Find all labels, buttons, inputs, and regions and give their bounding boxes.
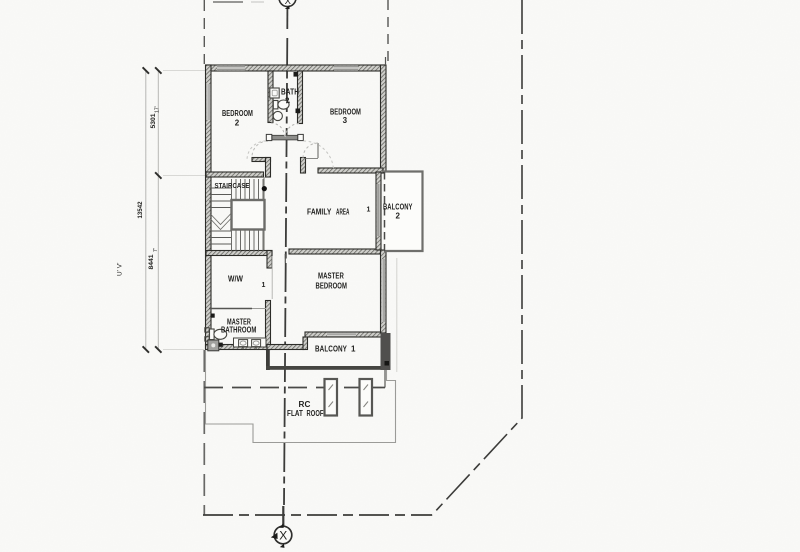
svg-text:FLAT: FLAT	[287, 408, 303, 418]
svg-text:1: 1	[351, 344, 356, 353]
svg-text:X: X	[279, 529, 287, 543]
svg-text:Uʼ Vʼ: Uʼ Vʼ	[116, 263, 124, 277]
svg-text:BEDROOM: BEDROOM	[222, 109, 253, 118]
svg-text:STAIRCASE: STAIRCASE	[215, 181, 250, 190]
svg-text:1: 1	[367, 207, 371, 214]
svg-text:BALCONY: BALCONY	[315, 344, 347, 353]
svg-text:3: 3	[343, 116, 348, 125]
svg-text:7ʼ: 7ʼ	[153, 248, 159, 252]
svg-text:BATH: BATH	[281, 88, 299, 97]
svg-text:BALCONY: BALCONY	[383, 202, 413, 211]
svg-text:FAMILY: FAMILY	[307, 207, 332, 216]
svg-text:17ʼ: 17ʼ	[155, 106, 161, 113]
svg-text:X: X	[285, 0, 292, 7]
svg-text:BATHROOM: BATHROOM	[221, 326, 257, 335]
svg-text:BEDROOM: BEDROOM	[316, 281, 348, 290]
svg-text:5301: 5301	[150, 113, 157, 128]
svg-text:2: 2	[396, 212, 401, 221]
svg-text:13542: 13542	[137, 201, 144, 218]
svg-text:1: 1	[262, 282, 266, 289]
svg-text:AREA: AREA	[336, 207, 350, 216]
svg-text:8441: 8441	[148, 254, 155, 269]
svg-text:ROOF: ROOF	[307, 408, 324, 418]
svg-text:2: 2	[235, 119, 240, 128]
svg-text:W/W: W/W	[228, 275, 243, 284]
svg-text:MASTER: MASTER	[318, 271, 344, 280]
